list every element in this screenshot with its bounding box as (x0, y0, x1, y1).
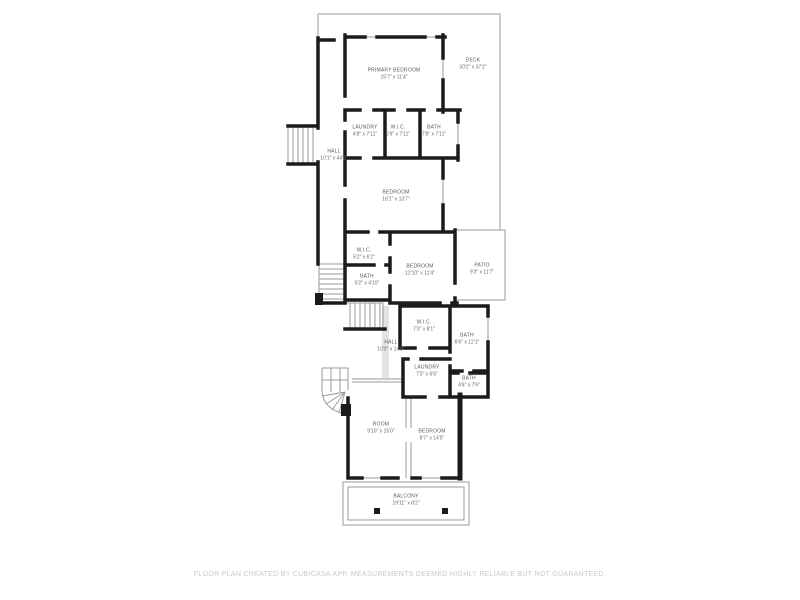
room-partition (406, 397, 411, 478)
hall-railing (352, 379, 403, 382)
disclaimer-text: FLOOR PLAN CREATED BY CUBICASA APP. MEAS… (0, 571, 800, 578)
walls (288, 35, 488, 478)
staircase-middle (319, 264, 383, 327)
balcony-posts (374, 508, 448, 514)
floor-plan-drawing (0, 0, 800, 600)
floor-plan-page: PRIMARY BEDROOM 15'7" x 11'4" DECK 30'2"… (0, 0, 800, 600)
patio-outline (455, 230, 505, 300)
stair-wall-stubs (315, 293, 351, 416)
windows (362, 37, 488, 478)
staircase-upper (288, 126, 313, 164)
balcony-outline (343, 482, 469, 525)
